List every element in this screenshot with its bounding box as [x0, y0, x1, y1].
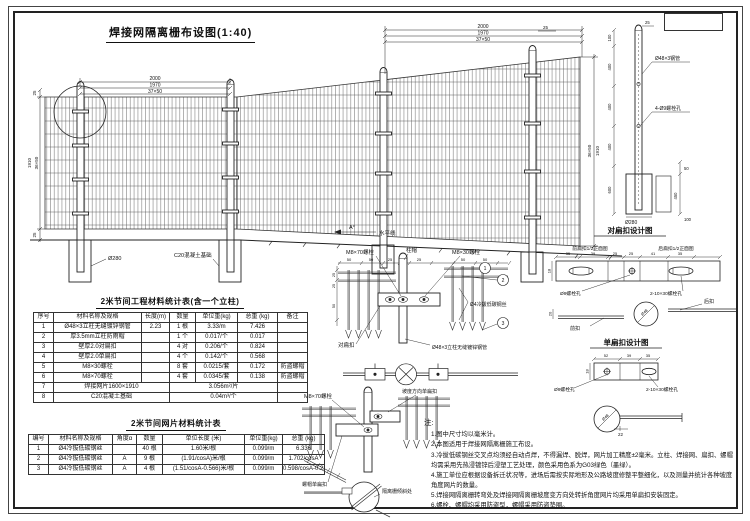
cell: 0.568: [238, 353, 278, 363]
cell: 3: [29, 465, 49, 475]
dim-label: 1910: [27, 157, 32, 168]
dim-label: 41: [651, 251, 656, 256]
cell: 0.142/个: [196, 353, 238, 363]
table2-title-row: 2米节间网片材料统计表: [28, 418, 324, 431]
dim-label: 50: [369, 257, 374, 262]
cell: [278, 323, 308, 333]
cell: 0.04m³/个: [170, 393, 278, 403]
dim-label: 25: [629, 251, 634, 256]
dim-label: 25: [417, 257, 422, 262]
cell: [278, 353, 308, 363]
dim-label: 39: [627, 353, 632, 358]
callout-2: 2: [502, 278, 505, 284]
cell: [142, 333, 170, 343]
callout-3: 3: [502, 321, 505, 327]
mesh-materials-table: 编号 材料名称及规格 角度α 数量 单位长度 (米) 单位重(kg) 总重 (k…: [28, 434, 325, 475]
col-header: 角度α: [113, 435, 137, 445]
dim-label: 18: [548, 268, 552, 273]
cell: 40 根: [137, 445, 163, 455]
hole9-label: Ø9螺栓孔: [560, 290, 581, 297]
cell: Ø48×3立柱无缝镀锌钢管: [54, 323, 142, 333]
cell: [142, 363, 170, 373]
double-buckle-label: 对扁扣: [338, 341, 355, 349]
dim-label: 37×50: [148, 89, 162, 95]
col-header: 序号: [34, 313, 54, 323]
dim-label: 37×50: [476, 37, 490, 43]
bolt-m8x70-label: M8×70螺栓: [304, 392, 332, 400]
dim-label: 35: [566, 251, 571, 256]
dim-label: 50: [332, 304, 336, 308]
dim-label: 600: [607, 186, 612, 194]
col-header: 数量: [170, 313, 196, 323]
callout-1: 1: [484, 266, 487, 272]
mesh-panels: [45, 57, 580, 246]
cell: 3.33/m: [196, 323, 238, 333]
dim-label: 25: [388, 257, 393, 262]
cell: 壁厚2.0对扁扣: [54, 343, 142, 353]
notes-heading: 注:: [424, 417, 737, 429]
cell: 4: [34, 353, 54, 363]
cell: 4 个: [170, 353, 196, 363]
section-title: 对扁扣设计图: [608, 225, 653, 235]
cell: 1 根: [170, 323, 196, 333]
cell: A: [113, 455, 137, 465]
cell: (1.51/cosA-0.566)米/根: [163, 465, 245, 475]
table-row: 1Ø4冷拔低碳钢丝40 根1.60米/根0.099/m6.336: [29, 445, 325, 455]
dim-label: 400: [607, 103, 612, 111]
cell: [142, 353, 170, 363]
post-and-buckles: [336, 387, 400, 472]
note-item: 3.冷拔低碳钢丝交叉点均须经自动点焊，不得漏焊、脱焊，网片加工精度±2毫米。立柱…: [424, 451, 737, 471]
cell: 防盗螺帽: [278, 373, 308, 383]
dim-label: 18: [585, 369, 590, 374]
table2-title: 2米节间网片材料统计表: [126, 418, 226, 431]
cell: A: [113, 465, 137, 475]
cap-buckle-label: 螺帽单扁扣: [302, 481, 327, 488]
dim-label: 52: [604, 353, 609, 358]
col-header: 总重 (kg): [238, 313, 278, 323]
post-and-buckle: [378, 253, 440, 343]
cell: 0.099/m: [245, 455, 283, 465]
cell: 2: [34, 333, 54, 343]
note-item: 2.本图适用于焊接网隔离栅施工布设。: [424, 440, 737, 450]
cell: [278, 343, 308, 353]
dim-label: 50: [483, 257, 488, 262]
cell: [113, 445, 137, 455]
cell: 壁厚2.0单扁扣: [54, 353, 142, 363]
dim-label: 450: [673, 192, 678, 200]
dim-chain-right: [678, 160, 682, 216]
dim-label: 1970: [477, 31, 488, 37]
bolt-m8x30-label: M8×30螺栓: [452, 248, 480, 256]
callout-circles: [480, 263, 509, 329]
col-header: 数量: [137, 435, 163, 445]
cell: C20混凝土基础: [54, 393, 170, 403]
dim-label: 100: [607, 34, 612, 42]
dim-label: 35: [646, 353, 651, 358]
post-pipe-label: Ø48×3立柱无缝镀锌钢管: [432, 344, 487, 351]
pipe-label: Ø48×3钢管: [655, 55, 680, 62]
col-header: 总重 (kg): [283, 435, 325, 445]
cell: 0.099/m: [245, 445, 283, 455]
dim-label: 1970: [149, 83, 160, 89]
cell: 4 根: [137, 465, 163, 475]
cell: 7.426: [238, 323, 278, 333]
dim-label: 25: [645, 20, 650, 25]
table-row: 8 C20混凝土基础 0.04m³/个: [34, 393, 308, 403]
table1-title-row: 2米节间工程材料统计表(含一个立柱): [33, 296, 307, 309]
cell: 2: [29, 455, 49, 465]
cell: 1: [29, 445, 49, 455]
col-header: 材料名称及规格: [49, 435, 113, 445]
base-dia-label: Ø280: [625, 220, 637, 226]
cell: 0.138: [238, 373, 278, 383]
cell: 4 对: [170, 343, 196, 353]
cell: Ø4冷拔低碳钢丝: [49, 455, 113, 465]
dim-label: 25: [613, 251, 618, 256]
dim-label: 50: [461, 257, 466, 262]
plan-section: [343, 364, 518, 385]
dim-label: 2000: [477, 24, 488, 30]
note-item: 1.图中尺寸均以毫米计。: [424, 430, 737, 440]
col-header: 材料名称及规格: [54, 313, 142, 323]
hole9-label: Ø9螺栓孔: [554, 386, 575, 393]
dim-label: 25: [332, 273, 336, 277]
front-buckle-label: 前扣: [570, 325, 580, 332]
slope-buckle-label: 坡度方向单扁扣: [402, 388, 437, 395]
wire-label: Ø4冷拔低碳钢丝: [470, 301, 507, 308]
post-elevation-detail: Ø48×3钢管 4-Ø9螺栓孔 25 100 400 400 400 600 5…: [598, 14, 746, 226]
cell: 6.336: [283, 445, 325, 455]
col-header: 单位重(kg): [245, 435, 283, 445]
cell: 6: [34, 373, 54, 383]
table-row: 3壁厚2.0对扁扣4 对0.206/个0.824: [34, 343, 308, 353]
note-item: 5.焊接网隔离栅转弯处及焊接网隔离栅坡度变方向处转折角度网片均采用单扁扣安装固定…: [424, 491, 737, 501]
table-row: 2Ø4冷拔低碳钢丝A9 根(1.91/cosA)米/根0.099/m1.702/…: [29, 455, 325, 465]
cell: 8 套: [170, 363, 196, 373]
cell: 1.60米/根: [163, 445, 245, 455]
cell: 0.017/个: [196, 333, 238, 343]
foundation-dia-label: Ø280: [108, 256, 121, 262]
incline-label: 隔离栅倾斜处: [382, 488, 412, 495]
cell: 0.017: [238, 333, 278, 343]
dim-label: 36×50: [587, 144, 592, 157]
bolt-m8x70-label: M8×70螺栓: [346, 248, 374, 256]
cell: [142, 343, 170, 353]
table-row: 4壁厚2.0单扁扣4 个0.142/个0.568: [34, 353, 308, 363]
cell: M8×30螺栓: [54, 363, 142, 373]
dim-row: [554, 255, 722, 259]
buckle-plate: [552, 261, 720, 281]
cell: 1.702/cosA: [283, 455, 325, 465]
dim-label: 50: [684, 166, 689, 171]
back-view-label: 后扁扣1/2正面图: [658, 245, 694, 252]
dim-label: 400: [607, 143, 612, 151]
back-buckle-label: 后扣: [704, 298, 714, 305]
cell: [142, 373, 170, 383]
table1-title: 2米节间工程材料统计表(含一个立柱): [96, 296, 245, 309]
dim-label: 400: [607, 63, 612, 71]
post-cap-label: 柱帽: [406, 246, 418, 254]
col-header: 备注: [278, 313, 308, 323]
cell: Ø4冷拔低碳钢丝: [49, 445, 113, 455]
dim-label: 100: [684, 217, 692, 222]
cell: 防盗螺帽: [278, 363, 308, 373]
col-header: 编号: [29, 435, 49, 445]
mesh-table-section: 2米节间网片材料统计表 编号 材料名称及规格 角度α 数量 单位长度 (米) 单…: [28, 418, 324, 475]
dim-chain-left: [612, 28, 616, 216]
table-row: 7 焊接网片1600×1910 3.056m²/片: [34, 383, 308, 393]
table-row: 6M8×70螺栓4 套0.0345/套0.138防盗螺帽: [34, 373, 308, 383]
dim-label: 36×50: [34, 156, 39, 169]
cell: (1.91/cosA)米/根: [163, 455, 245, 465]
cell: 0.206/个: [196, 343, 238, 353]
drawing-sheet: 焊接网隔离栅布设图(1:40): [0, 0, 750, 521]
cell: 5: [34, 363, 54, 373]
cell: 9 根: [137, 455, 163, 465]
cell: M8×70螺栓: [54, 373, 142, 383]
dim-label: 35: [678, 251, 683, 256]
cell: 0.0215/套: [196, 363, 238, 373]
materials-table-section: 2米节间工程材料统计表(含一个立柱) 序号 材料名称及规格 长度(m) 数量 单…: [33, 296, 307, 403]
post-body: [626, 25, 671, 214]
cell: 0.172: [238, 363, 278, 373]
cell: [278, 393, 308, 403]
dim-label: 39: [591, 251, 596, 256]
table-row: 1Ø48×3立柱无缝镀锌钢管2.231 根3.33/m7.426: [34, 323, 308, 333]
note-item: 4.施工单位应根据设备拆迁状况等，进场后需按实际地形及公路坡度修整平整细化，以及…: [424, 471, 737, 491]
col-header: 长度(m): [142, 313, 170, 323]
table-header-row: 序号 材料名称及规格 长度(m) 数量 单位重(kg) 总重 (kg) 备注: [34, 313, 308, 323]
cell: 3.056m²/片: [170, 383, 278, 393]
bolt-holes-label: 4-Ø9螺栓孔: [655, 105, 681, 112]
cell: [278, 383, 308, 393]
foundation-label: C20混凝土基础: [174, 251, 212, 259]
cell: 1: [34, 323, 54, 333]
cell: Ø4冷拔低碳钢丝: [49, 465, 113, 475]
table-row: 3Ø4冷拔低碳钢丝A4 根(1.51/cosA-0.566)米/根0.099/m…: [29, 465, 325, 475]
cell: 1 个: [170, 333, 196, 343]
dim-label: 2000: [149, 76, 160, 82]
table-row: 5M8×30螺栓8 套0.0215/套0.172防盗螺帽: [34, 363, 308, 373]
materials-table: 序号 材料名称及规格 长度(m) 数量 单位重(kg) 总重 (kg) 备注 1…: [33, 312, 308, 403]
cell: 厚3.5mm立柱防雨帽: [54, 333, 142, 343]
cell: 0.0345/套: [196, 373, 238, 383]
notes-section: 注: 1.图中尺寸均以毫米计。 2.本图适用于焊接网隔离栅施工布设。 3.冷拔低…: [424, 417, 737, 512]
hole1030-label: 2-10×30螺栓孔: [650, 290, 682, 297]
cell: 4 套: [170, 373, 196, 383]
cell: 8: [34, 393, 54, 403]
table-header-row: 编号 材料名称及规格 角度α 数量 单位长度 (米) 单位重(kg) 总重 (k…: [29, 435, 325, 445]
table-row: 2厚3.5mm立柱防雨帽1 个0.017/个0.017: [34, 333, 308, 343]
cell: 0.099/m: [245, 465, 283, 475]
section-title: 单扁扣设计图: [604, 337, 649, 347]
col-header: 单位重(kg): [196, 313, 238, 323]
col-header: 单位长度 (米): [163, 435, 245, 445]
dim-label: 25: [332, 284, 336, 288]
dim-label: 25: [543, 25, 549, 30]
dim-label: 20: [548, 311, 553, 316]
cell: 7: [34, 383, 54, 393]
cell: 0.824: [238, 343, 278, 353]
hole1030-label: 2-10×30螺栓孔: [646, 386, 678, 393]
post-top-connection-detail: 50 50 25 25 50 50 25 25 50 M8×70螺栓 柱帽 M8…: [332, 230, 546, 356]
double-buckle-design: 对扁扣设计图 前扁扣1/2正面图 后扁扣1/2正面图 35 39 25 25 4…: [548, 222, 744, 334]
note-item: 6.螺栓、螺帽均采用防盗型，螺帽采用防盗垫圈。: [424, 501, 737, 511]
cell: 焊接网片1600×1910: [54, 383, 170, 393]
cell: 2.23: [142, 323, 170, 333]
cell: 0.598/cosA-0.224: [283, 465, 325, 475]
dim-label: 25: [32, 90, 37, 96]
dim-label: 25: [32, 232, 37, 238]
cell: [278, 333, 308, 343]
cell: 3: [34, 343, 54, 353]
dim-label: 50: [347, 257, 352, 262]
